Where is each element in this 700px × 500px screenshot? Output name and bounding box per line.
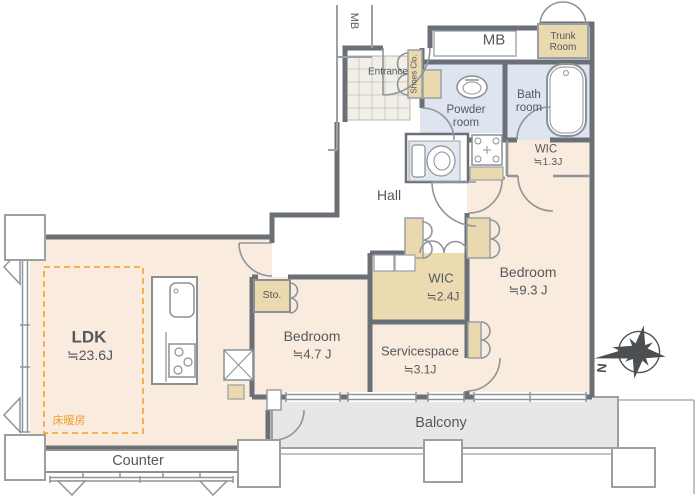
wic-large-label: WIC [428, 272, 453, 287]
trunk-room-label: Trunk Room [543, 31, 583, 53]
wic-large-size: ≒2.4J [427, 290, 460, 303]
ldk-label: LDK [72, 327, 107, 346]
servicespace-size: ≒3.1J [404, 363, 437, 376]
meter-box-label: MB [483, 33, 506, 50]
kitchen-sink-icon [170, 283, 194, 317]
powder-room-label: Powder room [440, 104, 492, 130]
sink-icon [457, 76, 487, 98]
bedroom-small-label: Bedroom [284, 329, 341, 345]
toilet-icon [406, 134, 468, 182]
washer-pan-icon [472, 135, 502, 165]
wic-small-size: ≒1.3J [534, 157, 563, 169]
bath-room-label: Bath room [509, 89, 549, 115]
meter-box-shaft-label: MB [348, 13, 360, 30]
bedroom-main-size: ≒9.3 J [508, 284, 547, 299]
storage-label: Sto. [263, 290, 282, 302]
bedroom-main-label: Bedroom [500, 265, 557, 281]
refrigerator-space-icon [224, 350, 253, 380]
kitchen-icon [152, 277, 197, 384]
servicespace-label: Servicespace [381, 345, 459, 360]
entrance-label: Entrance [368, 66, 408, 77]
floor-heating-label: 床暖房 [53, 415, 86, 427]
hall-label: Hall [377, 188, 401, 204]
counter-label: Counter [112, 453, 164, 469]
balcony-label: Balcony [415, 415, 467, 431]
floor-plan: LDK ≒23.6J Bedroom ≒9.3 J Bedroom ≒4.7 J… [0, 0, 700, 500]
wic-small-label: WIC [535, 144, 557, 157]
bathtub-icon [547, 64, 586, 136]
shoes-closet-label: Shoes Clo. [411, 54, 420, 93]
floor-plan-drawing [0, 0, 700, 500]
bedroom-small-size: ≒4.7 J [292, 348, 331, 363]
ldk-size: ≒23.6J [67, 348, 113, 364]
compass-north-label: N [593, 363, 608, 374]
compass-icon [592, 318, 670, 383]
